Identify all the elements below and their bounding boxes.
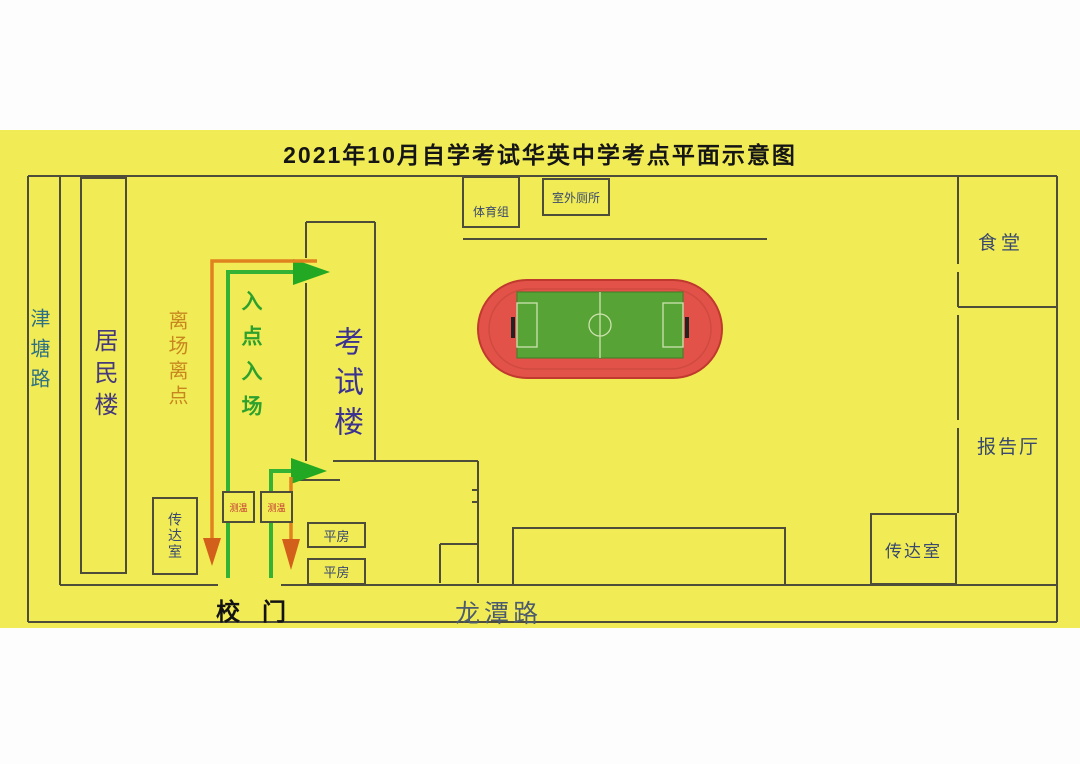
school-gate-label: 校门 <box>216 592 308 627</box>
east-block-walls <box>958 176 1057 513</box>
gatehouse-left: 传达室 <box>152 497 198 575</box>
sports-group-label: 体育组 <box>473 203 509 220</box>
gatehouse-left-label: 传达室 <box>165 512 185 560</box>
outdoor-toilet-building: 室外厕所 <box>542 178 610 216</box>
temp-check-booth-right: 测温 <box>260 491 293 523</box>
running-track <box>478 280 722 378</box>
temp-check-right-label: 测温 <box>267 501 285 514</box>
entry-route-label: 入点入场 <box>235 290 265 430</box>
outdoor-toilet-label: 室外厕所 <box>552 189 600 206</box>
soccer-pitch <box>513 292 687 358</box>
gatehouse-right: 传达室 <box>870 513 957 585</box>
exit-route-label: 离场离点 <box>162 310 191 410</box>
lecture-hall-label: 报告厅 <box>977 432 1040 459</box>
gatehouse-right-label: 传达室 <box>885 537 942 562</box>
residential-building: 居民楼 <box>80 177 127 574</box>
residential-label: 居民楼 <box>86 328 121 424</box>
temp-check-left-label: 测温 <box>229 501 247 514</box>
south-courtyard-outline <box>513 528 785 585</box>
bungalow-north-label: 平房 <box>323 526 349 545</box>
bungalow-south: 平房 <box>307 558 366 585</box>
road-label-longtan: 龙潭路 <box>455 594 542 630</box>
road-label-jintang: 津塘路 <box>24 308 53 398</box>
sports-group-building: 体育组 <box>462 176 520 228</box>
temp-check-booth-left: 测温 <box>222 491 255 523</box>
exam-site-plan: 2021年10月自学考试华英中学考点平面示意图 <box>0 0 1080 764</box>
exam-building-label: 考试楼 <box>323 326 367 446</box>
bungalow-south-label: 平房 <box>323 562 349 581</box>
bungalow-north: 平房 <box>307 522 366 548</box>
canteen-label: 食堂 <box>978 228 1024 255</box>
